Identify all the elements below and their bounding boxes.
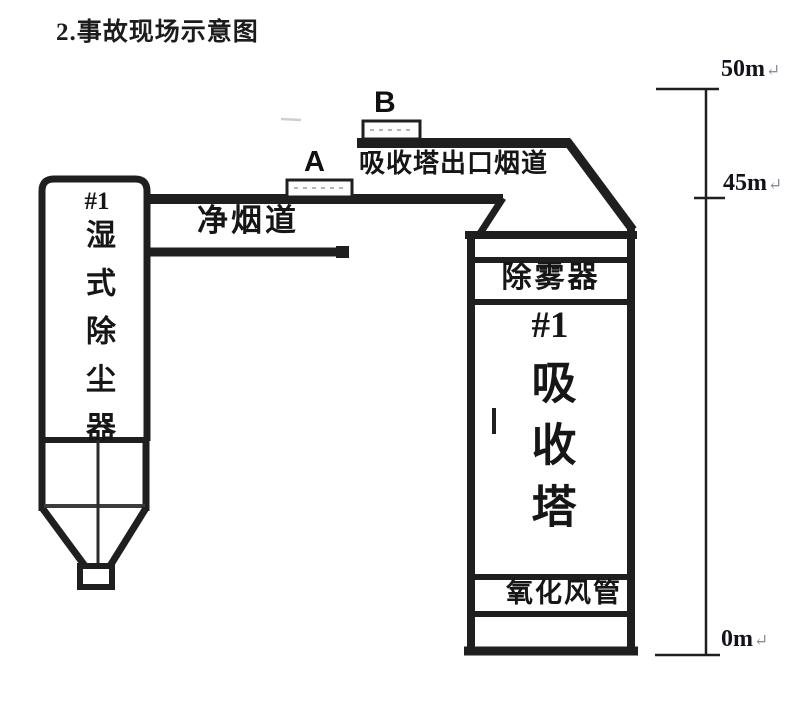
- document-page: 2.事故现场示意图: [0, 0, 806, 701]
- paragraph-mark-icon: ↵: [766, 61, 780, 80]
- paragraph-mark-icon: ↵: [768, 175, 782, 194]
- absorber-unit-label: #1: [532, 307, 569, 344]
- clean-flue-label: 净烟道: [197, 205, 299, 236]
- sampling-point-a-label: A: [304, 148, 325, 177]
- elevation-value-50m: 50m: [721, 56, 765, 82]
- elevation-value-45m: 45m: [723, 170, 767, 196]
- outlet-flue-label: 吸收塔出口烟道: [359, 151, 548, 177]
- diagram-linework: [0, 0, 806, 701]
- absorber-name-label: 吸收塔: [527, 359, 572, 545]
- clean-flue-end-cap: [336, 246, 349, 258]
- hood-right-slope: [567, 141, 633, 230]
- hopper-right-slope: [110, 508, 146, 566]
- paragraph-mark-icon: ↵: [754, 631, 768, 650]
- faint-smudge: [281, 119, 301, 120]
- wet-dust-collector-unit-label: #1: [85, 189, 110, 214]
- elevation-value-0m: 0m: [721, 626, 753, 652]
- sampling-point-b-label: B: [374, 88, 396, 118]
- oxidation-air-pipe-label: 氧化风管: [506, 580, 622, 607]
- elevation-label-50m: 50m↵: [721, 57, 780, 81]
- demister-label: 除雾器: [502, 263, 601, 293]
- elevation-label-45m: 45m↵: [723, 171, 782, 195]
- hopper-left-slope: [43, 509, 85, 566]
- wet-dust-collector-name-label: 湿式除尘器: [82, 219, 112, 459]
- hopper-outlet: [80, 566, 112, 587]
- elevation-scale-shape: [655, 89, 725, 655]
- elevation-label-0m: 0m↵: [721, 627, 768, 651]
